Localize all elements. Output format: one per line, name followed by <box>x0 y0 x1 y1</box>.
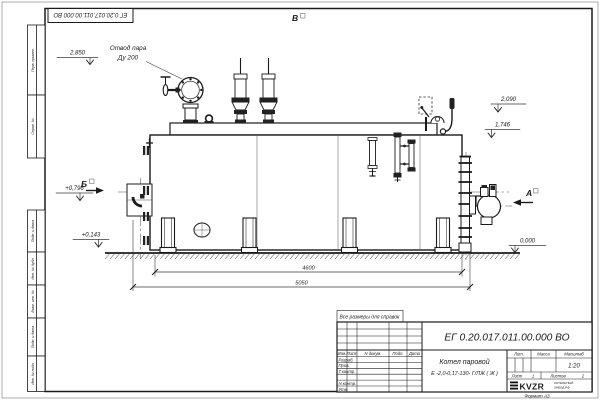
sheet-label: Лист <box>511 373 523 378</box>
logo-subtext: ЗАВОД РФ <box>554 386 570 390</box>
ground-line <box>105 253 520 260</box>
lifting-lug <box>205 115 214 123</box>
sheet-number: 1 <box>532 373 534 378</box>
header-masshtab: Масштаб <box>564 352 584 357</box>
reference-note: Все размеры для справок <box>340 315 401 321</box>
support-leg <box>435 218 451 253</box>
reference-note-box: Все размеры для справок <box>337 311 403 323</box>
support-leg <box>160 218 176 253</box>
row-label: Разраб. <box>339 357 354 362</box>
margin-label: Подп. и дата <box>31 220 35 243</box>
product-name-line1: Котел паровой <box>439 358 489 366</box>
col-header: Лист <box>346 351 358 356</box>
support-leg <box>242 218 258 253</box>
row-label: Т.контр. <box>339 369 356 374</box>
doc-number: ЕГ 0.20.017.011.00.000 ВО <box>444 333 569 344</box>
note-line: Отвод пара <box>110 44 147 52</box>
row-label: Н.контр. <box>339 381 357 386</box>
dim-value: 5050 <box>295 281 308 287</box>
title-block: ЕГ 0.20.017.011.00.000 ВО Котел паровой … <box>337 322 592 392</box>
dim-value: 4600 <box>302 266 315 272</box>
col-header: N докум. <box>365 351 382 356</box>
header-lit: Лит. <box>513 352 524 357</box>
row-label: Пров. <box>339 363 350 368</box>
view-letter: А <box>525 188 532 198</box>
margin-label: Подп. и дата <box>31 326 35 349</box>
logo-subtext: КОТЕЛЬНЫЙ <box>554 381 573 385</box>
view-letter: В <box>292 13 298 23</box>
elevation-value: 2,850 <box>69 51 86 57</box>
col-header: Изм. <box>338 351 347 356</box>
format-label: Формат А3 <box>524 393 550 398</box>
margin-label: Инв. № подл. <box>31 362 35 384</box>
sheets-label: Листов <box>549 373 566 378</box>
margin-label: Перв. примен. <box>31 48 35 72</box>
margin-label: Взам. инв. № <box>31 290 35 312</box>
col-header: Подп. <box>392 351 403 356</box>
note-line: Ду 200 <box>117 55 139 62</box>
header-massa: Масса <box>537 352 550 357</box>
logo-text: KVZR <box>520 381 545 391</box>
drawing-sheet: Перв. примен. Справ. № Подп. и дата Инв.… <box>0 0 600 400</box>
elevation-value: 2,090 <box>500 97 517 103</box>
product-name-line2: Е -2,0-0,17-130- Г/ЛЖ ( Ж ) <box>431 371 498 377</box>
boiler-general-view-drawing: Перв. примен. Справ. № Подп. и дата Инв.… <box>0 0 600 400</box>
view-letter: Б <box>81 179 87 189</box>
col-header: Дата <box>408 351 421 356</box>
elevation-value: 0,000 <box>520 239 536 245</box>
margin-label: Инв. № дубл. <box>31 257 35 279</box>
top-doc-number: ЕГ 0.20.017.011.00.000 ВО <box>53 11 127 17</box>
logo-bars-icon <box>510 382 518 390</box>
top-doc-number-box: ЕГ 0.20.017.011.00.000 ВО <box>48 9 133 23</box>
row-label: Утв. <box>339 387 349 392</box>
elevation-value: +0,143 <box>82 233 101 239</box>
scale-value: 1:20 <box>568 364 580 370</box>
support-leg <box>342 218 358 253</box>
elevation-value: 1,746 <box>495 123 511 129</box>
margin-label: Справ. № <box>31 118 35 134</box>
